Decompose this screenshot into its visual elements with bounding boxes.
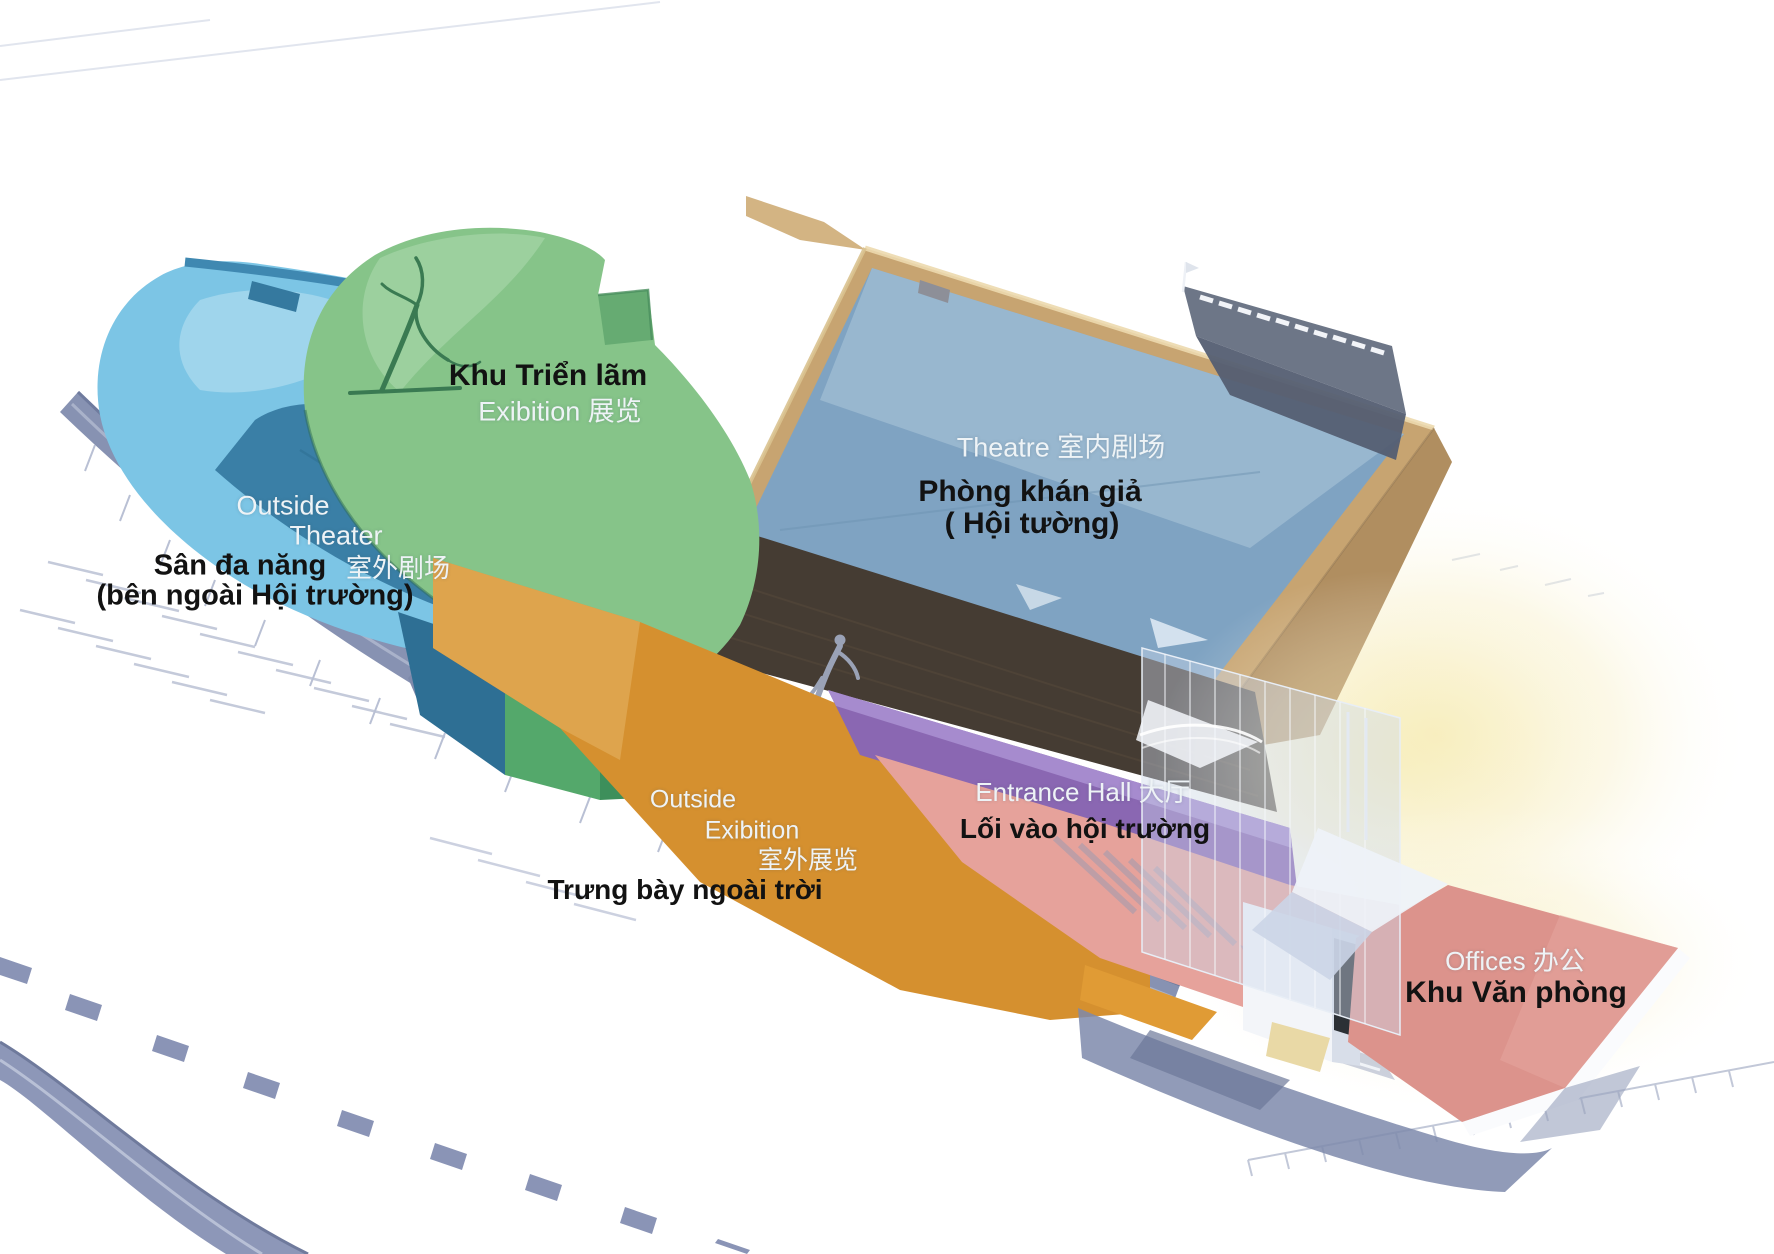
label-outside-theater-vi1: Sân đa năng: [154, 552, 326, 581]
exhibition-roof-notch: [598, 290, 652, 345]
label-offices-vi: Khu Văn phòng: [1405, 978, 1627, 1008]
label-outside-exhibition-zh: 室外展览: [758, 849, 858, 874]
label-theatre-vi1: Phòng khán giả: [918, 477, 1141, 507]
label-outside-theater-en1: Outside: [236, 493, 329, 520]
site-plan-scene: Khu Triển lãm Exibition 展览 Outside Theat…: [0, 0, 1774, 1254]
label-outside-theater-zh: 室外剧场: [346, 555, 450, 581]
label-outside-exhibition-en1: Outside: [650, 788, 736, 813]
label-outside-theater-vi2: (bên ngoài Hội trường): [96, 582, 413, 611]
label-exhibition-en: Exibition 展览: [478, 399, 642, 426]
label-entrance-hall-en: Entrance Hall 大厅: [975, 779, 1190, 805]
label-exhibition-vi: Khu Triển lãm: [449, 361, 647, 391]
label-outside-exhibition-vi: Trưng bày ngoài trời: [547, 876, 822, 904]
label-theatre-en: Theatre 室内剧场: [957, 435, 1166, 462]
label-outside-theater-en2: Theater: [289, 523, 382, 550]
label-offices-en: Offices 办公: [1445, 948, 1585, 974]
label-theatre-vi2: ( Hội tường): [945, 509, 1120, 539]
label-outside-exhibition-en2: Exibition: [705, 819, 800, 844]
label-entrance-hall-vi: Lối vào hội trường: [960, 815, 1210, 843]
site-plan-svg: [0, 0, 1774, 1254]
